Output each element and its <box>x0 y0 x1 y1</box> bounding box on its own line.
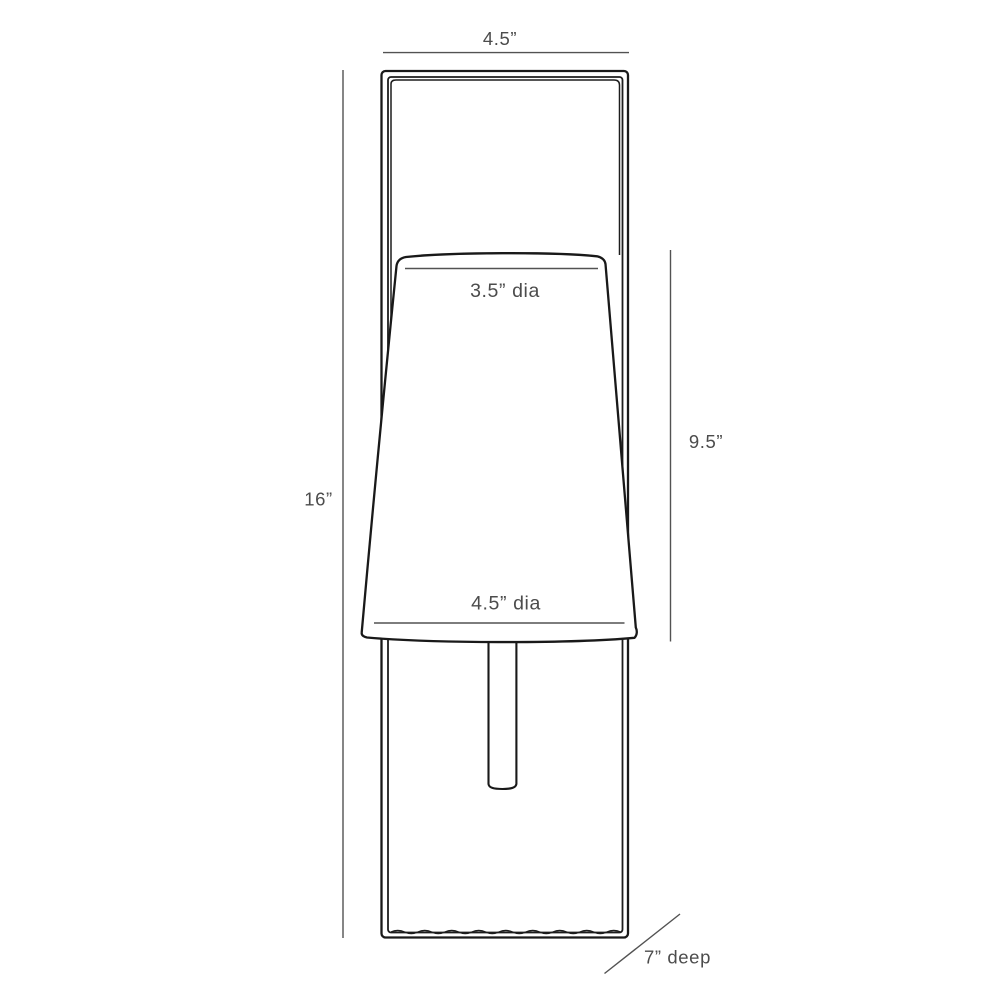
svg-text:4.5”: 4.5” <box>483 28 517 49</box>
svg-text:9.5”: 9.5” <box>689 431 723 452</box>
svg-text:16”: 16” <box>304 489 333 510</box>
svg-text:4.5” dia: 4.5” dia <box>471 592 541 614</box>
svg-text:7” deep: 7” deep <box>644 947 711 968</box>
svg-text:3.5” dia: 3.5” dia <box>470 280 540 302</box>
